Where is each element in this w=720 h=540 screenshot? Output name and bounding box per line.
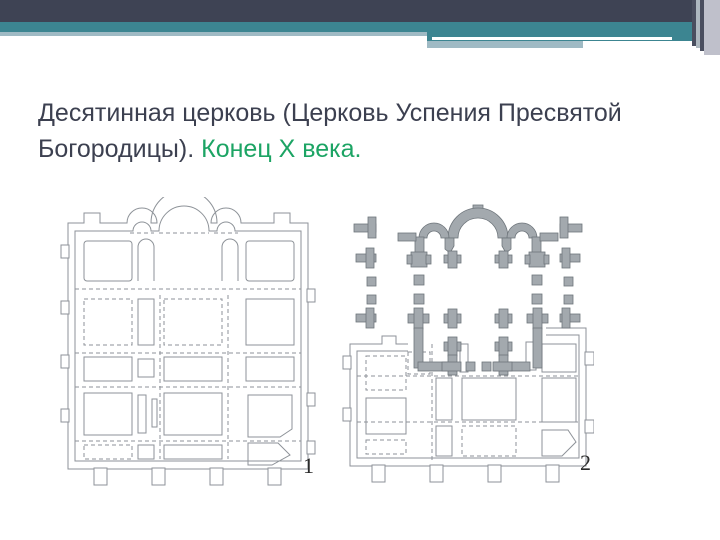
plan1-interior-rooms bbox=[75, 239, 301, 465]
header-right-stripe-lavender bbox=[704, 0, 720, 55]
plan2-interior-rooms bbox=[357, 342, 579, 462]
figure-2-label: 2 bbox=[580, 452, 591, 474]
header-bar-dark bbox=[0, 0, 720, 22]
church-floor-plan-1-drawing bbox=[60, 197, 316, 493]
plan1-outer-walls bbox=[68, 197, 308, 469]
church-floor-plan-2-drawing bbox=[342, 194, 594, 494]
header-extension-light bbox=[427, 41, 583, 48]
plan2-apse-group bbox=[398, 205, 558, 254]
header-bar-teal bbox=[0, 22, 720, 32]
presentation-slide: Десятинная церковь (Церковь Успения Прес… bbox=[0, 0, 720, 540]
header-extension-white bbox=[432, 37, 672, 40]
floor-plan-figure-2 bbox=[342, 194, 594, 494]
page-title: Десятинная церковь (Церковь Успения Прес… bbox=[38, 96, 640, 167]
floor-plan-figure-1 bbox=[60, 197, 316, 493]
figure-1-label: 1 bbox=[303, 455, 314, 477]
title-accent-text: Конец X века. bbox=[201, 135, 361, 163]
